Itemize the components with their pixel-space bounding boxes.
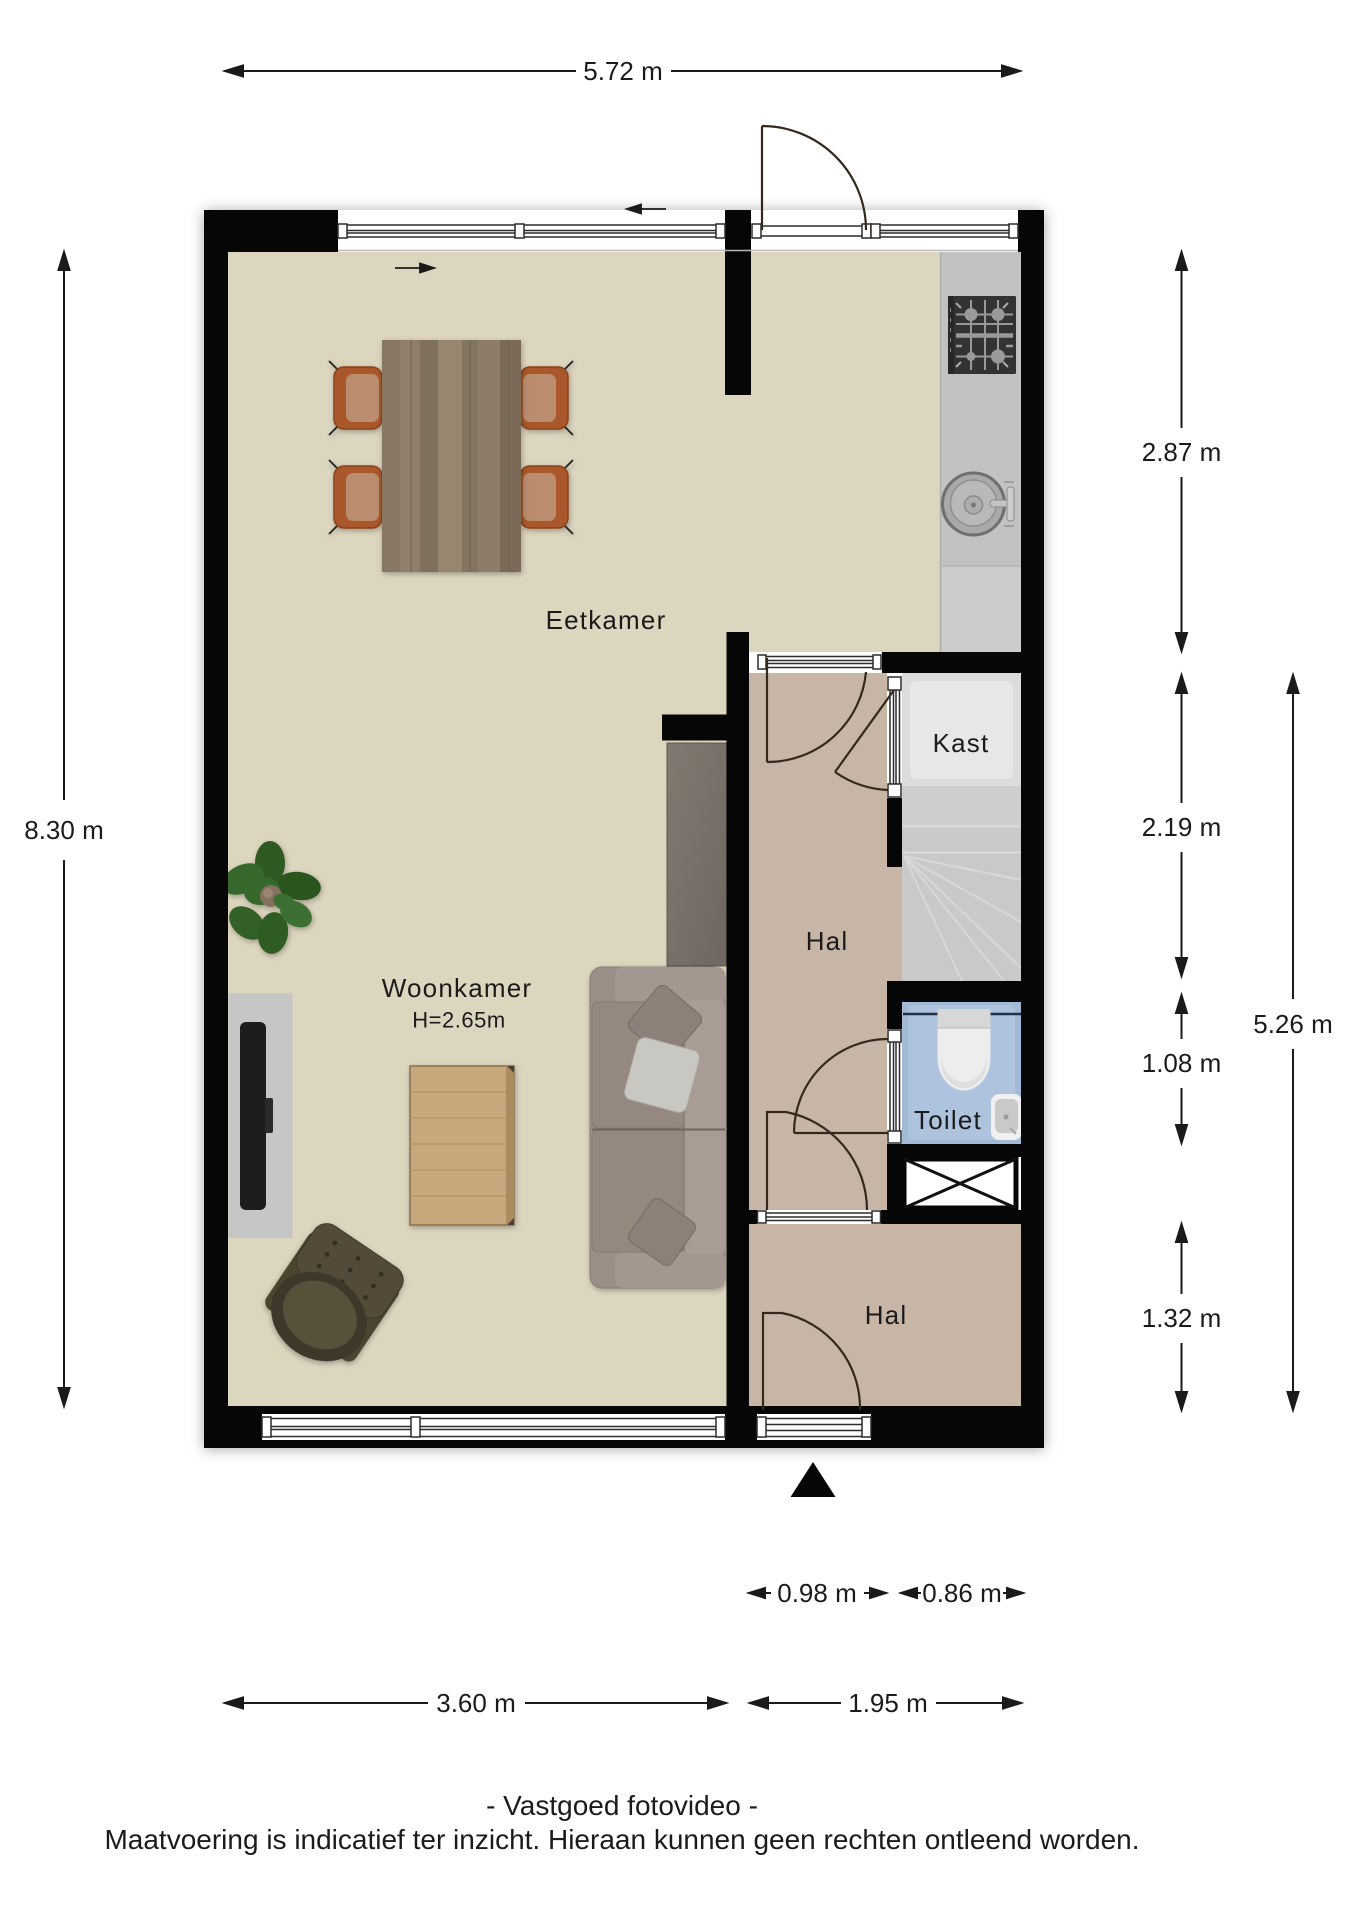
- svg-text:5.72 m: 5.72 m: [583, 56, 663, 86]
- svg-text:Hal: Hal: [865, 1300, 908, 1330]
- svg-text:2.87 m: 2.87 m: [1142, 437, 1222, 467]
- svg-text:Woonkamer: Woonkamer: [382, 973, 533, 1003]
- svg-text:0.98 m: 0.98 m: [777, 1578, 857, 1608]
- svg-text:Toilet: Toilet: [914, 1105, 982, 1135]
- svg-text:Kast: Kast: [933, 728, 990, 758]
- svg-text:Eetkamer: Eetkamer: [546, 605, 667, 635]
- svg-text:Hal: Hal: [806, 926, 849, 956]
- svg-text:3.60 m: 3.60 m: [436, 1688, 516, 1718]
- svg-text:Maatvoering is indicatief ter: Maatvoering is indicatief ter inzicht. H…: [104, 1824, 1139, 1855]
- svg-text:H=2.65m: H=2.65m: [412, 1008, 505, 1033]
- svg-text:1.95 m: 1.95 m: [848, 1688, 928, 1718]
- svg-text:2.19 m: 2.19 m: [1142, 812, 1222, 842]
- svg-text:5.26 m: 5.26 m: [1253, 1009, 1333, 1039]
- svg-text:- Vastgoed fotovideo -: - Vastgoed fotovideo -: [486, 1790, 758, 1821]
- svg-text:1.08 m: 1.08 m: [1142, 1048, 1222, 1078]
- svg-text:8.30 m: 8.30 m: [24, 815, 104, 845]
- svg-text:1.32 m: 1.32 m: [1142, 1303, 1222, 1333]
- svg-text:0.86 m: 0.86 m: [922, 1578, 1002, 1608]
